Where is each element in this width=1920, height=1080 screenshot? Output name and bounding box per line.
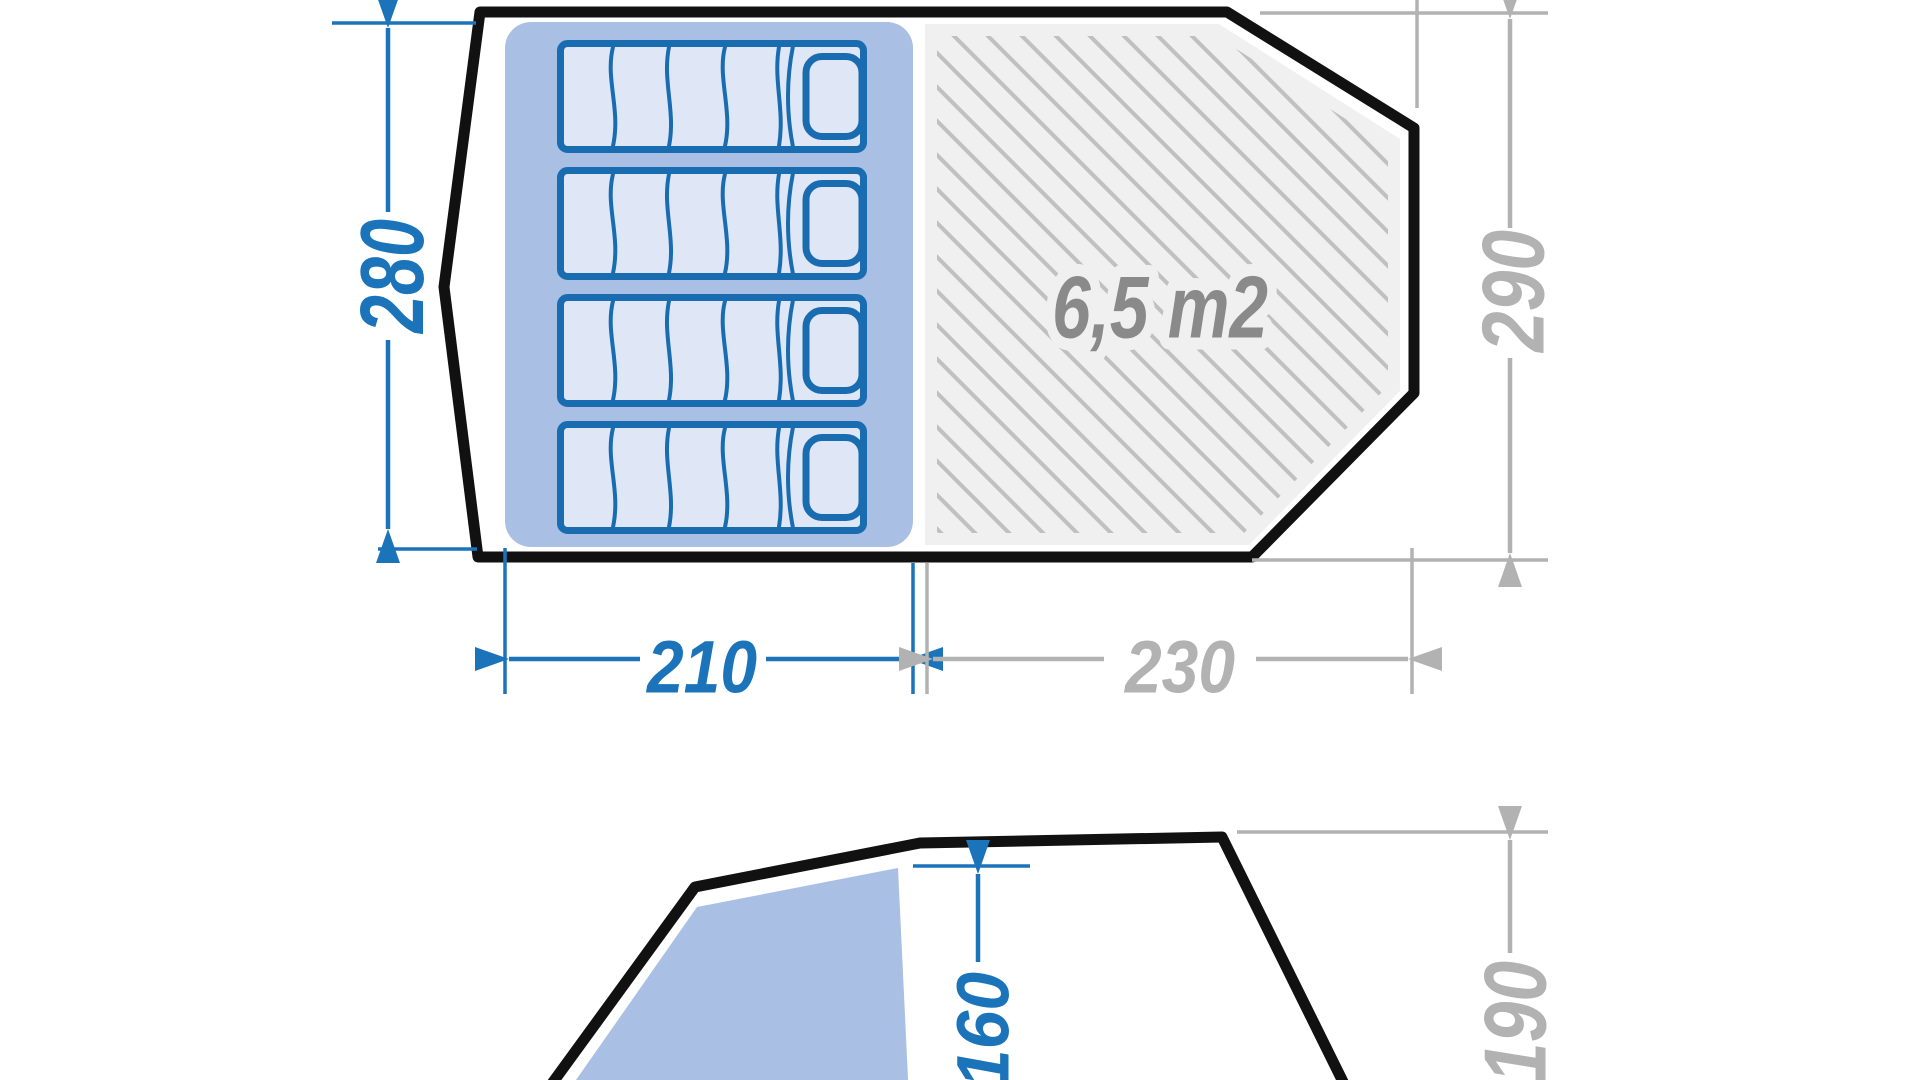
dim-label-230: 230	[1123, 626, 1235, 709]
dim-living-width-230: 230	[927, 548, 1412, 709]
dim-label-190: 190	[1466, 961, 1565, 1080]
diagram-canvas: 6,5 m2 280 290 210	[0, 0, 1920, 1080]
dim-label-210: 210	[645, 626, 757, 709]
dim-sleeping-width-210: 210	[505, 548, 913, 709]
mattress	[561, 171, 864, 277]
mattress	[561, 298, 864, 404]
dim-label-280: 280	[343, 219, 443, 335]
mattress	[561, 44, 864, 150]
elevation-view: 160 190	[540, 832, 1565, 1080]
door-panel	[562, 868, 909, 1080]
tent-dimensions-diagram: 6,5 m2 280 290 210	[0, 0, 1920, 1080]
dim-label-160: 160	[942, 972, 1025, 1080]
living-area-size-label: 6,5 m2	[1052, 258, 1268, 357]
floor-plan: 6,5 m2 280 290 210	[332, 0, 1563, 709]
mattress	[561, 425, 864, 531]
dim-label-290: 290	[1464, 230, 1563, 354]
